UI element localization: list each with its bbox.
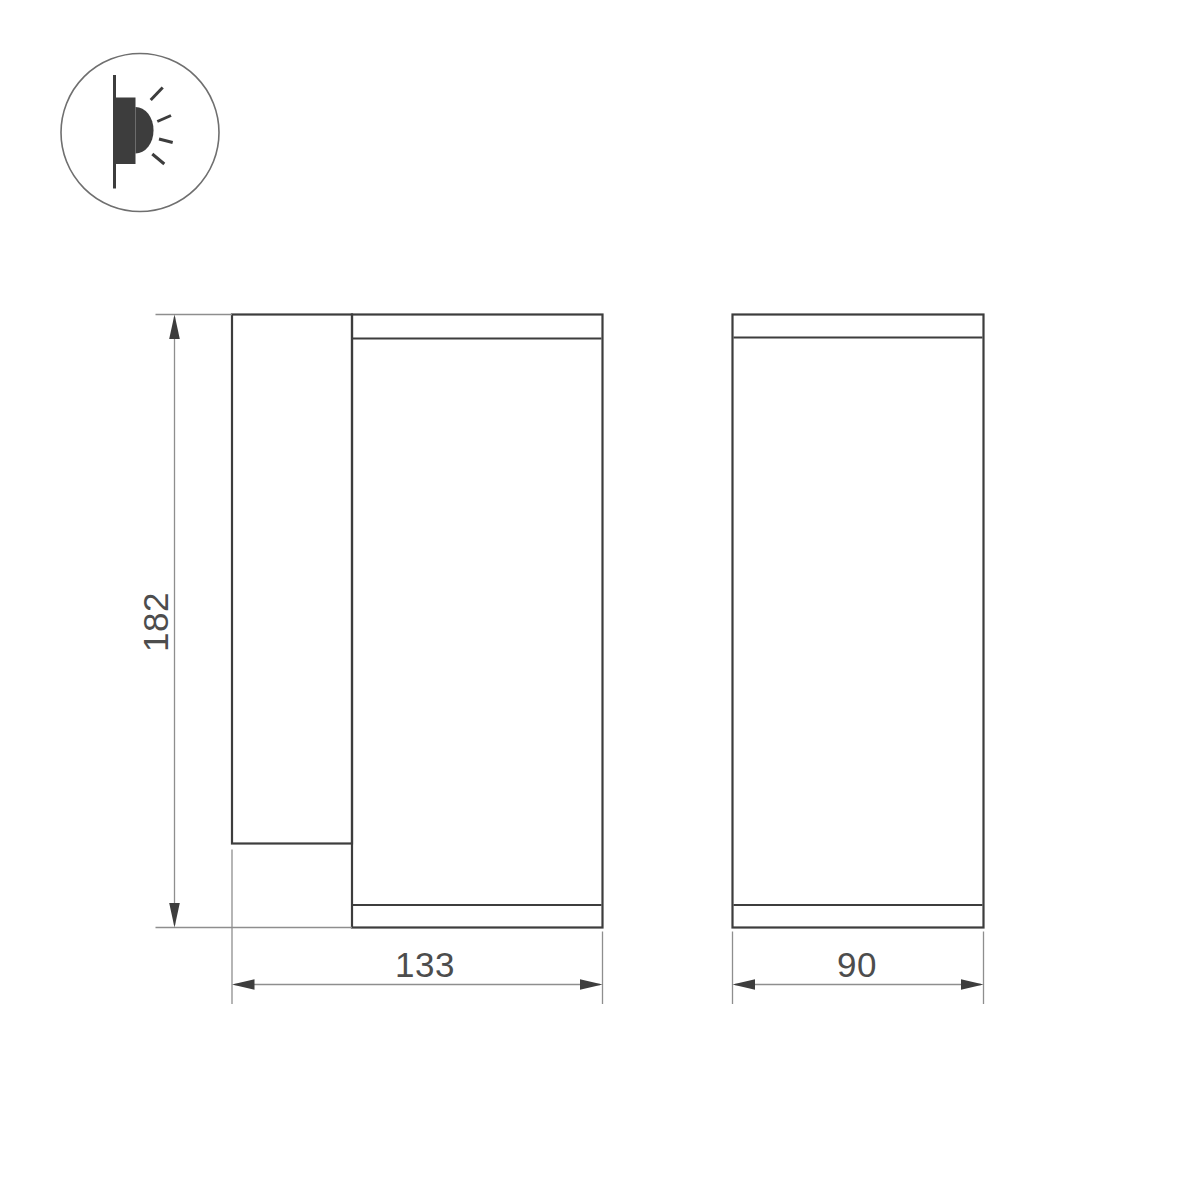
light-ray-icon [151, 88, 163, 101]
mounting-plate-outline [232, 315, 352, 844]
arrowhead-right-icon [580, 979, 603, 989]
side-view [232, 315, 603, 928]
technical-drawing: 182 133 90 [0, 0, 1200, 1200]
arrowhead-down-icon [169, 903, 180, 928]
depth-dimension-label: 90 [837, 945, 877, 984]
front-view [733, 315, 984, 928]
height-dimension-label: 182 [136, 592, 175, 652]
light-ray-icon [157, 116, 171, 122]
arrowhead-up-icon [169, 315, 180, 340]
arrowhead-left-icon [232, 979, 255, 989]
side-body-outline [352, 315, 603, 928]
icon-fixture-body [116, 98, 136, 165]
width-dimension-label: 133 [395, 945, 455, 984]
arrowhead-left-icon [733, 979, 756, 989]
light-ray-icon [152, 154, 164, 164]
depth-dimension: 90 [733, 932, 984, 1005]
light-ray-icon [159, 139, 173, 143]
wall-light-icon [61, 54, 219, 212]
arrowhead-right-icon [961, 979, 984, 989]
front-body-outline [733, 315, 984, 928]
height-dimension: 182 [136, 315, 352, 928]
icon-light-dome [136, 107, 154, 154]
